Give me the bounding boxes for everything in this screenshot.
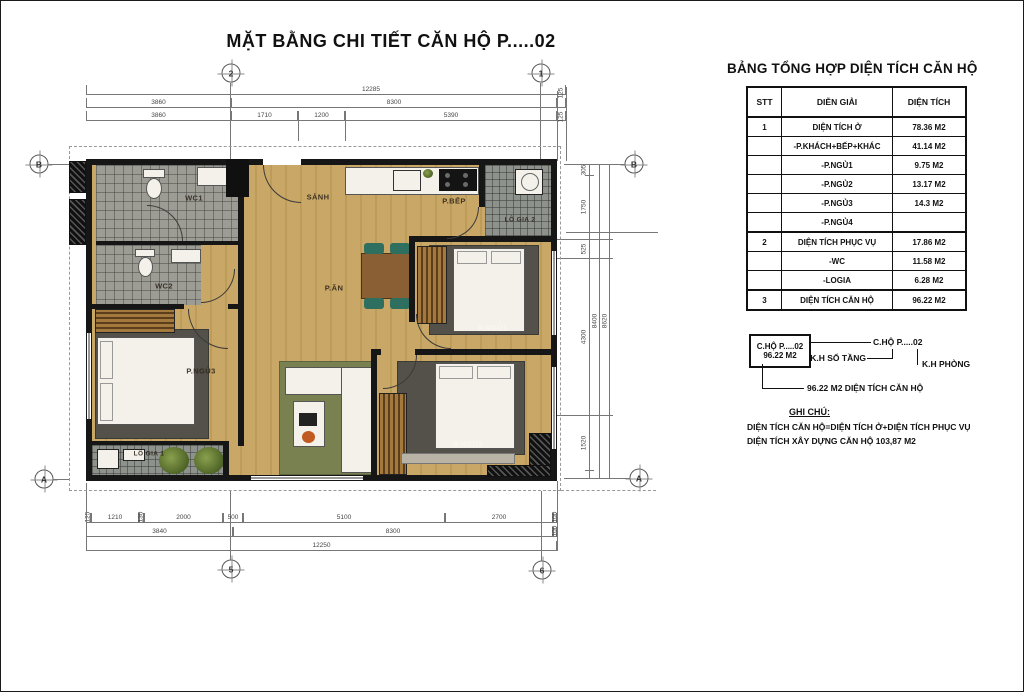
room-label-kitchen: P.BẾP	[442, 197, 466, 206]
kitchen-sink	[393, 170, 421, 191]
col-header-stt: STT	[748, 88, 781, 116]
room-label-bedroom1: P.NGỦ1	[478, 324, 507, 333]
pillow	[457, 251, 487, 264]
corner-column	[487, 465, 551, 477]
table-row: -P.NGỦ314.3 M2	[748, 193, 965, 212]
page-title: MẶT BẰNG CHI TIẾT CĂN HỘ P.....02	[171, 31, 611, 52]
room-label-loggia1: LÔ GIA 1	[134, 451, 165, 458]
room-label-hall: SẢNH	[307, 193, 330, 202]
window	[552, 251, 556, 335]
pillow	[100, 383, 113, 421]
grid-bubble-B-right: B	[625, 155, 644, 174]
table-row: 2DIỆN TÍCH PHỤC VỤ17.86 M2	[748, 231, 965, 251]
col-header-dien-giai: DIỄN GIẢI	[781, 88, 892, 116]
grid-bubble-1: 1	[532, 64, 551, 83]
room-label-bedroom2: P.NGỦ2	[453, 440, 482, 449]
window	[552, 367, 556, 449]
dining-chair	[390, 298, 410, 309]
table-row: -P.NGỦ19.75 M2	[748, 155, 965, 174]
shaft	[69, 161, 86, 193]
boundary-dashed-ext	[561, 490, 656, 491]
room-label-wc1: WC1	[185, 194, 203, 203]
sofa-side	[341, 367, 373, 473]
wc1-toilet-tank	[143, 169, 165, 178]
table-header-row: STT DIỄN GIẢI DIỆN TÍCH	[748, 88, 965, 116]
table-row: -WC11.58 M2	[748, 251, 965, 270]
area-table: STT DIỄN GIẢI DIỆN TÍCH 1DIỆN TÍCH Ở78.3…	[746, 86, 967, 311]
room-label-bedroom3: P.NGỦ3	[186, 367, 215, 376]
wc2-toilet-tank	[135, 249, 155, 257]
grid-bubble-6: 6	[533, 561, 552, 580]
bedroom2-bench	[401, 453, 515, 464]
area-callout: 96.22 M2 DIỆN TÍCH CĂN HỘ	[807, 383, 923, 393]
pillow	[477, 366, 511, 379]
room-label-wc2: WC2	[155, 282, 173, 291]
wc2-sink	[171, 249, 201, 263]
window	[251, 476, 363, 480]
grid-bubble-B-left: B	[30, 155, 49, 174]
window	[87, 333, 91, 419]
unit-key-callout: C.HỘ P.....02	[873, 337, 922, 347]
dining-table	[361, 253, 415, 299]
pillow	[100, 341, 113, 379]
wc2-toilet	[138, 257, 153, 277]
grid-bubble-A-right: A	[630, 469, 649, 488]
cooktop	[439, 169, 477, 191]
shaft	[69, 199, 86, 245]
column	[226, 159, 249, 197]
grid-bubble-5: 5	[222, 560, 241, 579]
table-row: 3DIỆN TÍCH CĂN HỘ96.22 M2	[748, 289, 965, 309]
coffee-table-tray	[299, 413, 317, 426]
coffee-table-dish	[302, 431, 315, 443]
wc1-toilet	[146, 178, 162, 199]
note-2: DIỆN TÍCH XÂY DỰNG CĂN HỘ 103,87 M2	[747, 436, 916, 446]
col-header-dien-tich: DIỆN TÍCH	[892, 88, 965, 116]
dining-chair	[390, 243, 410, 254]
plant	[194, 447, 224, 474]
room-code-label: K.H PHÒNG	[922, 359, 970, 369]
table-row: -LOGIA6.28 M2	[748, 270, 965, 289]
floor-plan-sheet: MẶT BẰNG CHI TIẾT CĂN HỘ P.....02 2 1 5 …	[0, 0, 1024, 692]
table-row: -P.NGỦ4	[748, 212, 965, 231]
floor-code-label: K.H SỐ TẦNG	[796, 353, 866, 363]
room-label-dining: P.ĂN	[325, 284, 344, 293]
table-row: -P.NGỦ213.17 M2	[748, 174, 965, 193]
room-label-loggia2: LÔ GIA 2	[505, 217, 536, 224]
kitchen-plant	[423, 169, 433, 178]
bedroom1-wardrobe	[417, 246, 447, 324]
dining-chair	[364, 243, 384, 254]
table-row: -P.KHÁCH+BẾP+KHÁC41.14 M2	[748, 136, 965, 155]
table-row: 1DIỆN TÍCH Ở78.36 M2	[748, 116, 965, 136]
dining-chair	[364, 298, 384, 309]
notes-title: GHI CHÚ:	[789, 407, 830, 417]
loggia1-washer	[97, 449, 119, 469]
grid-bubble-2: 2	[222, 64, 241, 83]
grid-bubble-A-left: A	[35, 470, 54, 489]
area-table-title: BẢNG TỔNG HỢP DIỆN TÍCH CĂN HỘ	[727, 61, 1017, 76]
note-1: DIỆN TÍCH CĂN HỘ=DIỆN TÍCH Ở+DIỆN TÍCH P…	[747, 422, 971, 432]
pillow	[491, 251, 521, 264]
pillow	[439, 366, 473, 379]
bedroom3-wardrobe	[95, 309, 175, 333]
